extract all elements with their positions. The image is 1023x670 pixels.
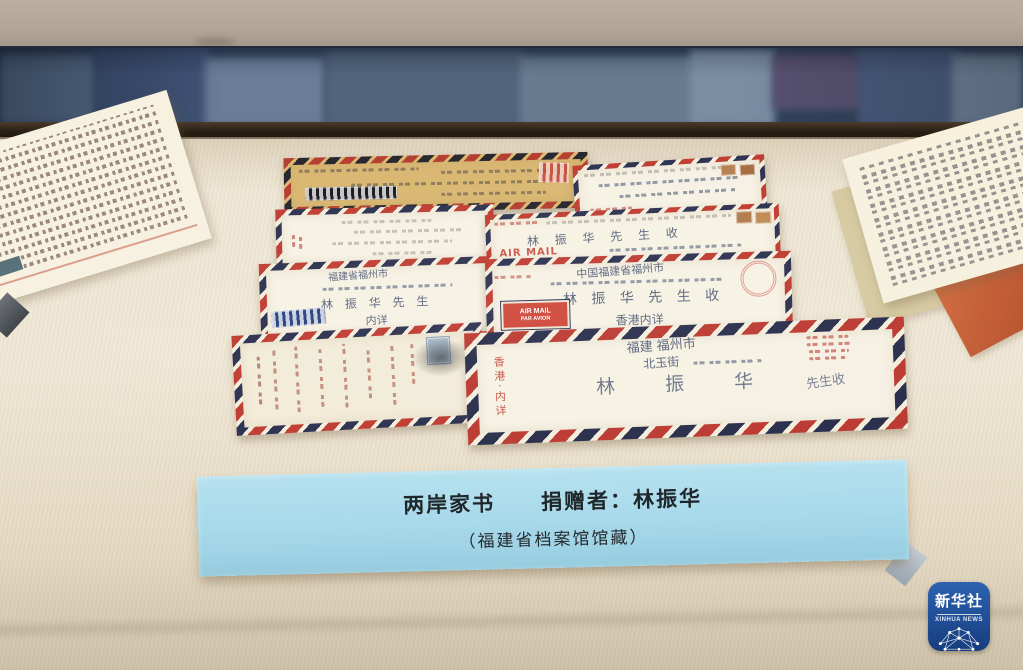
airmail-label-text: AIR MAIL [520,307,551,315]
origin-text: 香港内详 [615,313,663,326]
handwriting-scrawl [318,349,324,407]
addressee-suffix-text: 先生收 [805,373,845,391]
addressee-text: 林 振 华 先 生 收 [563,289,725,307]
handwriting-scrawl [342,344,349,408]
handwriting-scrawl [494,275,532,279]
red-stamp [538,162,569,183]
red-stamp-line [809,349,849,354]
network-globe-icon [934,625,984,651]
red-stamp-line [807,342,851,347]
handwriting-scrawl [372,251,432,255]
handwriting-scrawl [299,167,419,173]
envelope-row4-right: 福建 福州市 北玉街 林 振 华 先生收 香港·内详 [464,317,908,446]
address-city-text: 福建省福州市 [328,270,389,284]
origin-vertical-text: 香港·内详 [493,356,507,428]
xinhua-watermark: 新华社 XINHUA NEWS [928,582,990,651]
photo-scene: 林 振 华 先 生 收 AIR MAIL PAR AVION 福建省福州市 林 … [0,0,1023,670]
envelope-row4-left [231,322,486,436]
envelope-face [291,159,582,207]
handwriting-scrawl [299,235,302,249]
handwriting-scrawl [292,231,295,247]
par-avion-label-text: PAR AVION [521,315,551,322]
handwriting-scrawl [494,221,540,226]
addressee-text: 林 振 华 先 生 收 [527,227,685,248]
xinhua-en-text: XINHUA NEWS [935,617,983,623]
handwriting-scrawl [272,350,278,410]
caption-title-text: 两岸家书 捐赠者：林振华 [403,482,703,519]
caption-subtitle-text: （福建省档案馆馆藏） [458,523,649,553]
handwriting-scrawl [323,283,453,291]
black-postmark-smudge [412,337,470,378]
airmail-par-avion-label: AIR MAIL PAR AVION [501,300,570,330]
addressee-text: 林 振 华 先 生 [321,295,433,311]
envelope-face [240,331,478,428]
black-address-label [305,186,397,201]
origin-note-text: 内详 [365,315,387,327]
postage-stamp [740,164,756,176]
addressee-text: 林 振 华 [596,372,776,398]
red-stamp-line [806,335,848,340]
address-city-text: 福建 福州市 [626,337,696,355]
postage-stamp [736,211,752,224]
handwriting-scrawl [294,346,301,412]
handwriting-scrawl [441,191,546,196]
wall-smudge [195,38,235,46]
address-street-text: 北玉街 [643,356,680,371]
logo-divider [937,614,981,615]
blue-airmail-label [271,307,326,328]
handwriting-scrawl [693,359,763,365]
handwriting-scrawl [390,343,396,405]
handwriting-scrawl [609,243,741,252]
handwriting-scrawl [584,165,734,177]
envelope-face: 福建 福州市 北玉街 林 振 华 先生收 香港·内详 [476,329,895,433]
red-postmark [740,260,777,297]
handwriting-scrawl [342,219,432,224]
handwriting-scrawl [366,348,372,398]
postage-stamp [721,164,737,176]
address-city-text: 中国福建省福州市 [576,262,665,280]
handwriting-scrawl [354,228,464,234]
xinhua-cn-text: 新华社 [935,590,983,611]
caption-card: 两岸家书 捐赠者：林振华 （福建省档案馆馆藏） [197,459,909,576]
red-stamp-line [809,356,847,360]
handwriting-scrawl [599,176,739,188]
handwriting-scrawl [332,239,452,245]
wall-strip [0,0,1023,48]
postage-stamp [755,211,771,224]
handwriting-scrawl [619,188,737,198]
handwriting-scrawl [546,214,731,225]
handwriting-scrawl [257,357,263,405]
